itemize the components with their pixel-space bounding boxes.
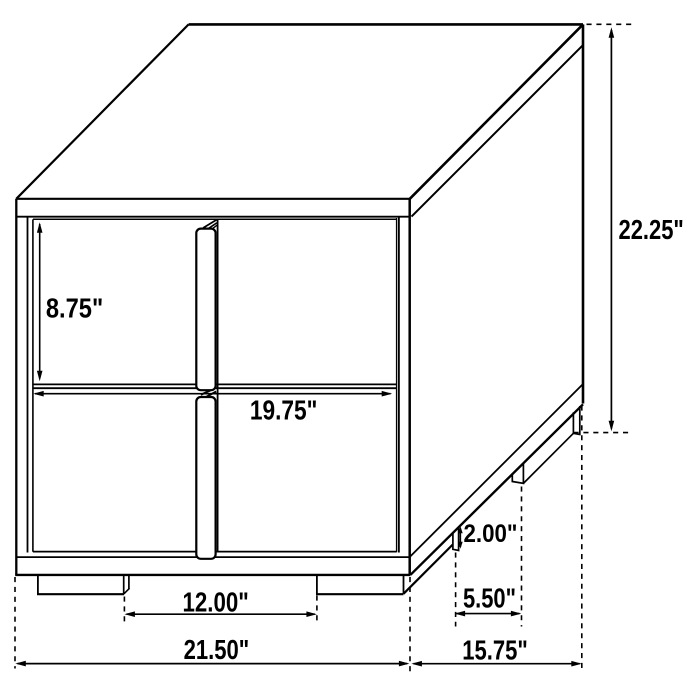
svg-text:19.75": 19.75"	[250, 393, 318, 425]
svg-text:8.75": 8.75"	[46, 291, 103, 323]
svg-text:12.00": 12.00"	[183, 586, 249, 618]
svg-text:5.50": 5.50"	[463, 581, 516, 613]
svg-text:21.50": 21.50"	[184, 633, 250, 665]
svg-text:15.75": 15.75"	[462, 633, 528, 665]
svg-text:22.25": 22.25"	[619, 213, 684, 245]
svg-text:2.00": 2.00"	[464, 520, 518, 548]
